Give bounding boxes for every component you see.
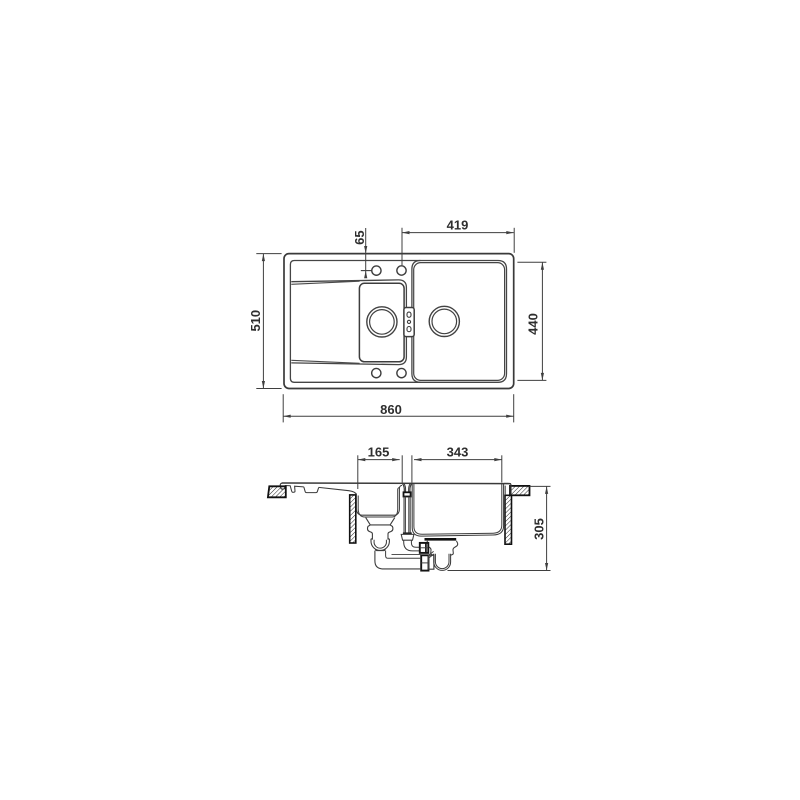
svg-text:165: 165 bbox=[368, 445, 390, 460]
svg-text:343: 343 bbox=[447, 445, 469, 460]
svg-text:419: 419 bbox=[447, 217, 469, 232]
svg-text:305: 305 bbox=[532, 518, 547, 540]
svg-text:440: 440 bbox=[526, 313, 541, 335]
svg-text:510: 510 bbox=[248, 310, 263, 332]
svg-text:860: 860 bbox=[380, 402, 402, 417]
svg-text:65: 65 bbox=[352, 230, 367, 244]
